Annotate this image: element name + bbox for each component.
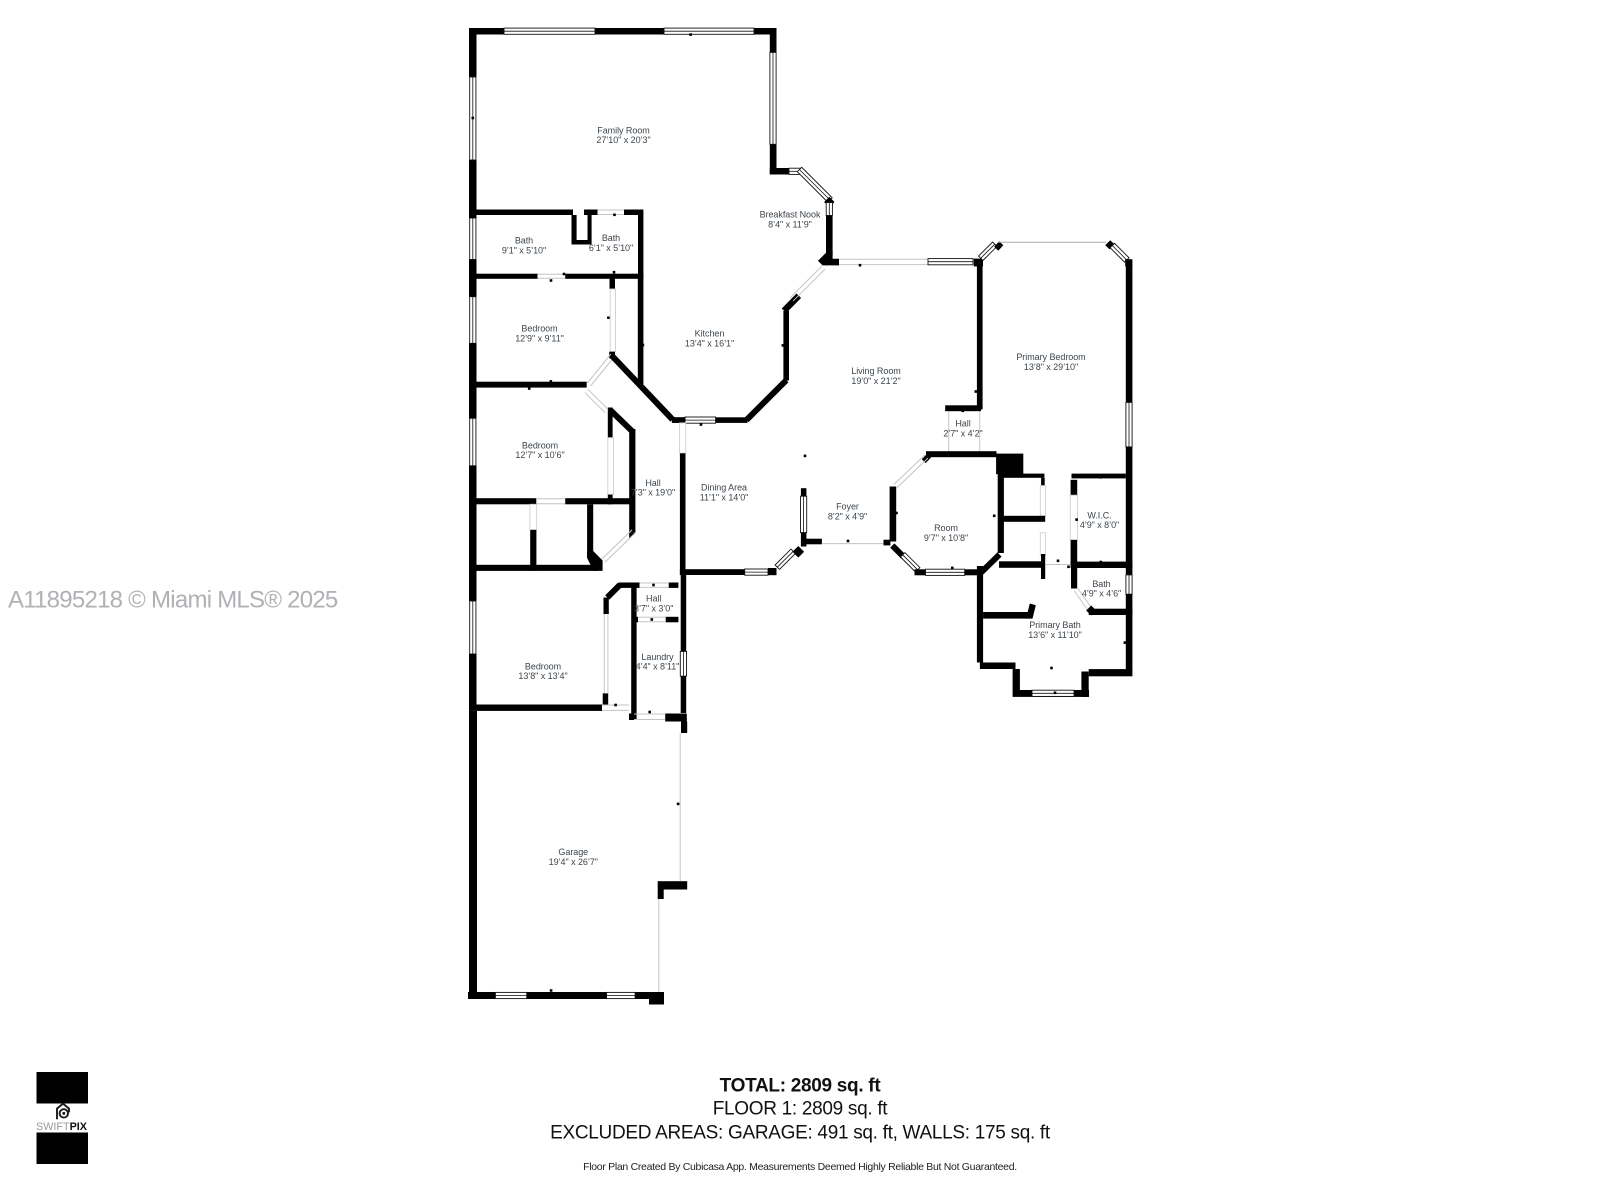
svg-text:Foyer: Foyer bbox=[836, 502, 859, 512]
svg-text:Dining Area: Dining Area bbox=[701, 483, 747, 493]
svg-text:13’6" x 11’10": 13’6" x 11’10" bbox=[1028, 630, 1082, 640]
svg-text:Family Room: Family Room bbox=[597, 125, 649, 135]
svg-text:SWIFTPIX: SWIFTPIX bbox=[36, 1121, 88, 1133]
svg-text:9’7" x 10’8": 9’7" x 10’8" bbox=[924, 533, 968, 543]
svg-text:11’1" x 14’0": 11’1" x 14’0" bbox=[700, 492, 749, 502]
svg-text:8’4" x 11’9": 8’4" x 11’9" bbox=[768, 219, 812, 229]
svg-text:Bedroom: Bedroom bbox=[522, 440, 558, 450]
svg-text:12’9" x 9’11": 12’9" x 9’11" bbox=[515, 334, 564, 344]
svg-text:13’8" x 29’10": 13’8" x 29’10" bbox=[1024, 362, 1078, 372]
svg-text:Bedroom: Bedroom bbox=[525, 661, 561, 671]
svg-text:8’2" x 4’9": 8’2" x 4’9" bbox=[828, 512, 867, 522]
svg-text:Bath: Bath bbox=[515, 236, 533, 246]
svg-text:Garage: Garage bbox=[558, 847, 588, 857]
svg-text:Kitchen: Kitchen bbox=[695, 329, 725, 339]
svg-text:4’4" x 8’11": 4’4" x 8’11" bbox=[636, 662, 680, 672]
svg-text:Bath: Bath bbox=[602, 233, 620, 243]
svg-text:9’1" x 5’10": 9’1" x 5’10" bbox=[502, 245, 546, 255]
svg-text:13’8" x 13’4": 13’8" x 13’4" bbox=[518, 671, 567, 681]
svg-text:Hall: Hall bbox=[645, 478, 660, 488]
svg-text:Living Room: Living Room bbox=[851, 366, 900, 376]
svg-text:19’4" x 26’7": 19’4" x 26’7" bbox=[549, 857, 598, 867]
svg-text:6’1" x 5’10": 6’1" x 5’10" bbox=[589, 243, 633, 253]
svg-text:Breakfast Nook: Breakfast Nook bbox=[760, 210, 821, 220]
svg-text:A11895218 © Miami MLS® 2025: A11895218 © Miami MLS® 2025 bbox=[8, 587, 338, 614]
svg-text:FLOOR 1: 2809 sq. ft: FLOOR 1: 2809 sq. ft bbox=[713, 1099, 889, 1120]
svg-text:13’4" x 16’1": 13’4" x 16’1" bbox=[685, 338, 734, 348]
svg-text:3’7" x 3’0": 3’7" x 3’0" bbox=[634, 604, 673, 614]
svg-text:27’10" x 20’3": 27’10" x 20’3" bbox=[596, 135, 650, 145]
svg-text:4’9" x 8’0": 4’9" x 8’0" bbox=[1080, 520, 1119, 530]
svg-text:Primary Bath: Primary Bath bbox=[1029, 620, 1080, 630]
svg-text:4’9" x 4’6": 4’9" x 4’6" bbox=[1082, 589, 1121, 599]
svg-text:12’7" x 10’6": 12’7" x 10’6" bbox=[515, 450, 564, 460]
svg-text:TOTAL: 2809 sq. ft: TOTAL: 2809 sq. ft bbox=[720, 1076, 882, 1097]
svg-text:Hall: Hall bbox=[955, 419, 970, 429]
svg-text:Laundry: Laundry bbox=[641, 652, 674, 662]
svg-text:Primary Bedroom: Primary Bedroom bbox=[1016, 352, 1085, 362]
svg-text:Hall: Hall bbox=[646, 594, 661, 604]
svg-text:Bedroom: Bedroom bbox=[521, 324, 557, 334]
svg-text:2’7" x 4’2": 2’7" x 4’2" bbox=[943, 429, 982, 439]
svg-text:Bath: Bath bbox=[1092, 579, 1110, 589]
svg-text:W.I.C.: W.I.C. bbox=[1087, 510, 1111, 520]
svg-text:19’0" x 21’2": 19’0" x 21’2" bbox=[851, 376, 900, 386]
svg-text:Room: Room bbox=[934, 523, 958, 533]
svg-text:7’3" x 19’0": 7’3" x 19’0" bbox=[631, 488, 675, 498]
svg-text:Floor Plan Created By Cubicasa: Floor Plan Created By Cubicasa App. Meas… bbox=[583, 1161, 1017, 1173]
svg-text:EXCLUDED AREAS: GARAGE: 491 sq: EXCLUDED AREAS: GARAGE: 491 sq. ft, WALL… bbox=[550, 1123, 1051, 1144]
